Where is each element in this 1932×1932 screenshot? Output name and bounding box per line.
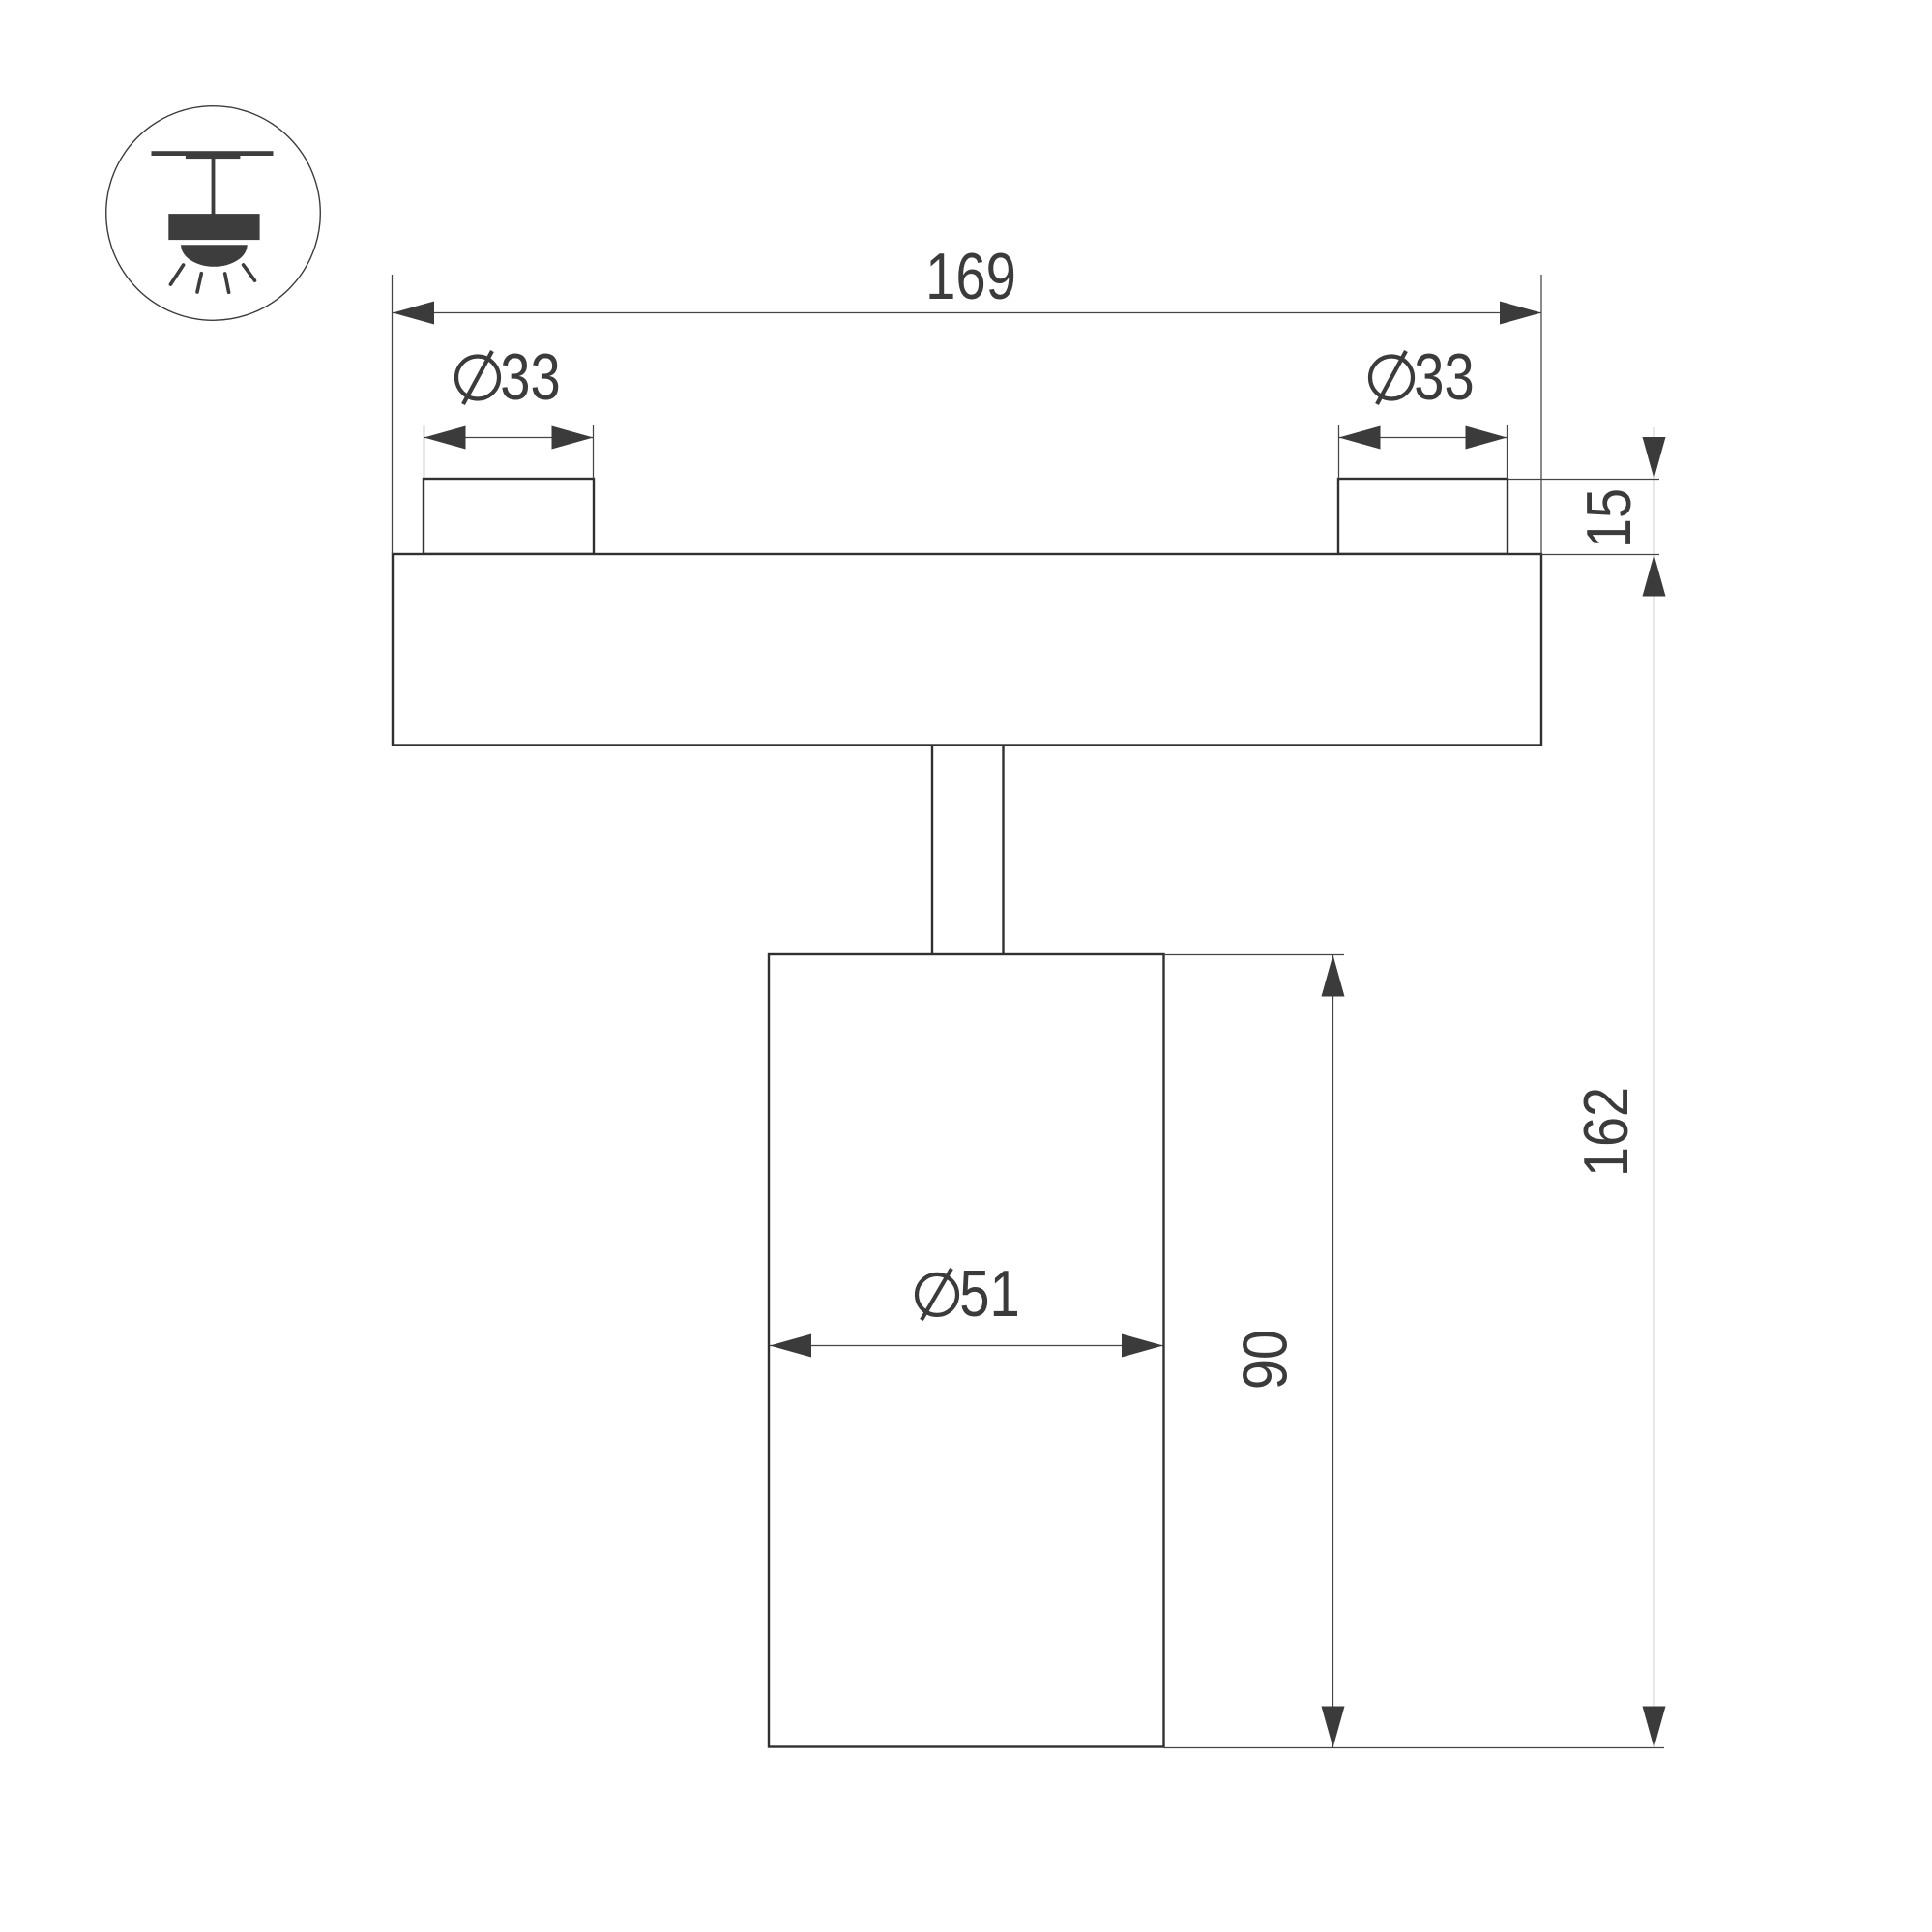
svg-text:169: 169: [925, 241, 1016, 313]
svg-text:51: 51: [959, 1258, 1019, 1331]
svg-text:33: 33: [500, 341, 560, 414]
svg-text:90: 90: [1230, 1330, 1301, 1390]
svg-text:162: 162: [1570, 1087, 1641, 1177]
svg-text:33: 33: [1414, 341, 1474, 414]
svg-text:15: 15: [1573, 488, 1644, 548]
